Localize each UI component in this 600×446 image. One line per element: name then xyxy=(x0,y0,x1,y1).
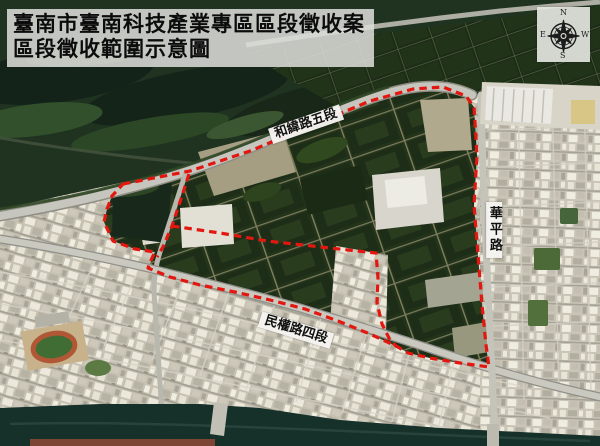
compass-rose: N E S W xyxy=(537,7,590,62)
factory-complex xyxy=(480,82,600,130)
road-label-huaping: 華平路 xyxy=(486,202,502,258)
map-title-line1: 臺南市臺南科技產業專區區段徵收案 xyxy=(13,12,365,37)
compass-s: S xyxy=(560,52,565,60)
map-title-line2: 區段徵收範圍示意圖 xyxy=(13,37,365,62)
map-figure: 臺南市臺南科技產業專區區段徵收案 區段徵收範圍示意圖 和緯路五段 華平路 民權路… xyxy=(0,0,600,446)
map-title: 臺南市臺南科技產業專區區段徵收案 區段徵收範圍示意圖 xyxy=(7,9,374,67)
compass-n: N xyxy=(560,9,567,17)
compass-w: W xyxy=(581,31,589,39)
riverside-red-building xyxy=(30,439,215,446)
park-trees xyxy=(85,360,111,376)
canal-bridge-east xyxy=(487,424,499,446)
compass-e: E xyxy=(540,31,546,39)
